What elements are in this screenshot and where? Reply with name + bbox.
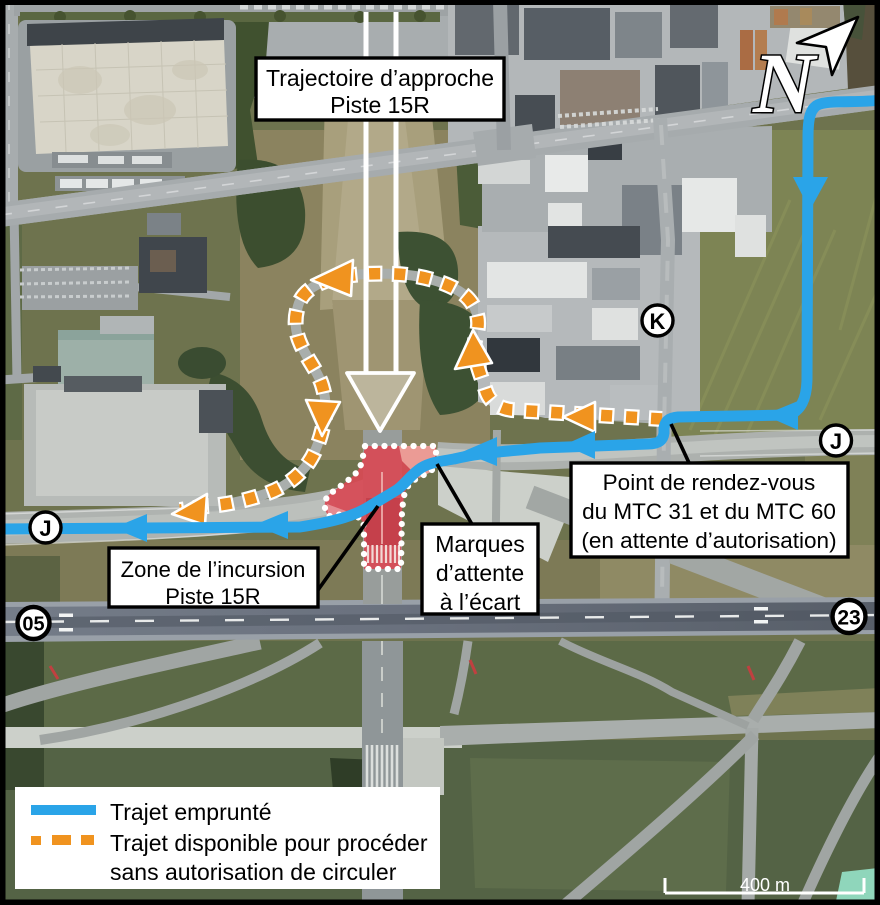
svg-text:Trajectoire d’approche: Trajectoire d’approche bbox=[266, 65, 494, 91]
svg-text:Marques: Marques bbox=[435, 531, 524, 557]
svg-text:Point de rendez-vous: Point de rendez-vous bbox=[603, 470, 816, 495]
svg-text:400 m: 400 m bbox=[740, 875, 790, 895]
svg-text:Piste 15R: Piste 15R bbox=[330, 92, 430, 118]
svg-text:05: 05 bbox=[22, 614, 44, 636]
svg-text:à l’écart: à l’écart bbox=[440, 589, 521, 615]
svg-text:J: J bbox=[39, 516, 51, 541]
svg-text:23: 23 bbox=[837, 607, 860, 630]
svg-text:J: J bbox=[830, 429, 842, 454]
svg-text:Piste 15R: Piste 15R bbox=[165, 584, 260, 609]
svg-text:du MTC 31 et du MTC 60: du MTC 31 et du MTC 60 bbox=[582, 499, 836, 524]
svg-text:Trajet disponible pour procéde: Trajet disponible pour procéder bbox=[110, 830, 428, 856]
svg-text:N: N bbox=[752, 35, 818, 131]
svg-text:K: K bbox=[650, 309, 666, 334]
svg-text:sans autorisation de circuler: sans autorisation de circuler bbox=[110, 859, 397, 885]
svg-text:(en attente d’autorisation): (en attente d’autorisation) bbox=[581, 528, 836, 553]
svg-text:Trajet emprunté: Trajet emprunté bbox=[110, 799, 272, 825]
svg-text:Zone de l’incursion: Zone de l’incursion bbox=[121, 557, 306, 582]
svg-text:d’attente: d’attente bbox=[436, 560, 524, 586]
